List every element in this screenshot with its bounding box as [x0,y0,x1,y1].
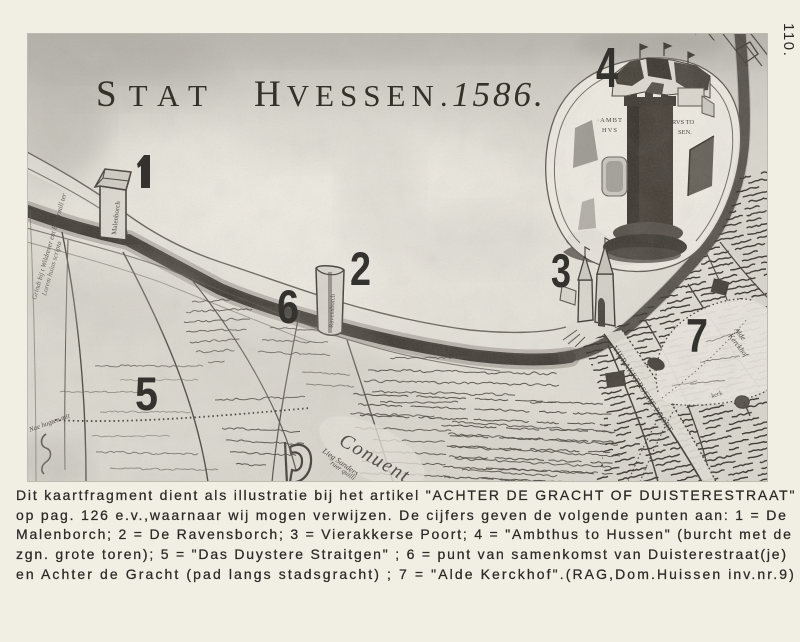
svg-text:4: 4 [596,36,618,100]
svg-text:1586.: 1586. [452,75,546,114]
svg-text:6: 6 [277,280,299,333]
svg-text:HVESSEN.: HVESSEN. [254,74,454,115]
svg-text:7: 7 [686,309,708,362]
svg-text:2: 2 [350,242,371,295]
svg-text:3: 3 [551,244,571,297]
svg-text:STAT: STAT [96,74,219,115]
svg-text:5: 5 [135,367,158,420]
